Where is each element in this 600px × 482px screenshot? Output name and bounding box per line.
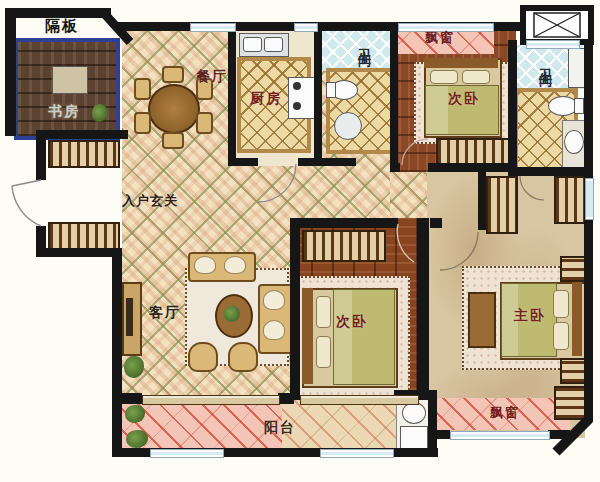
sofa-right-cushion-1 xyxy=(263,290,285,310)
wall-corridor-master xyxy=(478,172,486,230)
kitchen-sink-basin-left xyxy=(243,37,262,52)
label-kitchen: 厨房 xyxy=(250,90,282,108)
armchair-1 xyxy=(188,342,218,372)
label-study: 书房 xyxy=(48,103,80,121)
wall-bedroom-top-left xyxy=(390,31,398,172)
window-balcony-2 xyxy=(320,449,394,458)
sofa-top-cushion-1 xyxy=(194,256,216,274)
window-dining-top xyxy=(190,23,236,32)
sliding-door-living-balcony xyxy=(142,395,280,405)
bedroom-mid-wardrobe xyxy=(302,230,386,262)
wall-entry-bottom xyxy=(36,248,122,257)
sliding-door-bedroom-balcony xyxy=(300,395,419,405)
label-foyer: 入户玄关 xyxy=(122,192,178,210)
wall-bedroom-top-right xyxy=(508,40,517,172)
master-headboard xyxy=(572,282,582,356)
bath-top-toilet-tank xyxy=(326,82,336,98)
master-dresser xyxy=(554,386,586,420)
dining-chair-4 xyxy=(162,132,184,149)
bath-top-shower xyxy=(334,112,362,140)
label-bath-right: 卫生间 xyxy=(536,58,554,64)
label-bay-bottom: 飘窗 xyxy=(490,404,520,422)
foyer-cabinet-bottom xyxy=(48,222,120,250)
master-pillow-2 xyxy=(553,322,569,350)
bedroom-mid-pillow-1 xyxy=(316,296,331,328)
dining-table xyxy=(148,84,200,134)
wall-bedroom-mid-right xyxy=(417,218,429,400)
wall-left xyxy=(112,252,122,457)
wall-bedroom-top-bottom-2 xyxy=(428,163,516,172)
sofa-right-cushion-2 xyxy=(263,320,285,340)
room-bath-top xyxy=(322,31,390,71)
label-balcony: 阳台 xyxy=(264,419,296,437)
window-kitchen-top xyxy=(294,23,318,32)
wall-bedroom-top-bottom-1 xyxy=(390,163,400,172)
dining-chair-1 xyxy=(162,66,184,83)
wall-right xyxy=(584,40,593,422)
bedroom-top-headboard xyxy=(424,58,498,68)
wall-entry-upper xyxy=(36,130,46,180)
wall-balcony-pier-left xyxy=(122,393,142,404)
window-master-right xyxy=(585,178,594,220)
stove-burner-2 xyxy=(293,102,301,110)
wall-bay-bottom-left xyxy=(434,430,450,439)
label-dining: 餐厅 xyxy=(196,68,228,86)
label-bay-top: 飘窗 xyxy=(425,29,455,47)
dining-chair-5 xyxy=(134,112,151,134)
window-balcony-1 xyxy=(150,449,224,458)
master-wardrobe-left xyxy=(486,176,518,234)
wall-bedroom-mid-left xyxy=(290,218,300,400)
floorplan-canvas: 隔板 书房 餐厅 厨房 卫生间 飘窗 次卧 卫生间 入户玄关 客厅 次卧 主卧 … xyxy=(0,0,600,482)
master-nightstand-top xyxy=(560,256,586,282)
duct-shaft xyxy=(520,5,594,45)
bedroom-top-pillow-1 xyxy=(430,70,458,84)
master-pillow-1 xyxy=(553,290,569,318)
wall-utility-right xyxy=(428,390,437,457)
sofa-top-cushion-2 xyxy=(224,256,246,274)
wall-under-study xyxy=(36,130,128,139)
wall-bay-bottom-right xyxy=(548,430,570,439)
kitchen-sink-basin-right xyxy=(264,37,283,52)
bath-right-sink xyxy=(564,130,584,154)
bedroom-mid-blanket xyxy=(333,289,395,385)
wall-bath-right-bottom xyxy=(508,167,593,176)
label-partition: 隔板 xyxy=(45,17,79,36)
dining-chair-6 xyxy=(134,78,151,100)
label-bath-top: 卫生间 xyxy=(355,38,373,44)
utility-basin xyxy=(402,402,426,424)
foyer-cabinet-top xyxy=(48,140,120,168)
tv xyxy=(126,298,133,336)
window-bay-bottom-glass xyxy=(450,431,550,440)
study-desk xyxy=(52,66,88,94)
wall-balcony-pier-mid xyxy=(278,393,294,404)
armchair-2 xyxy=(228,342,258,372)
label-bedroom-top: 次卧 xyxy=(448,90,480,108)
wall-kitchen-bottom-1 xyxy=(228,158,258,166)
label-living: 客厅 xyxy=(149,304,181,322)
wall-bedroom-mid-top xyxy=(290,218,398,228)
kitchen-stove xyxy=(288,77,316,119)
bedroom-mid-pillow-2 xyxy=(316,336,331,368)
label-bedroom-mid: 次卧 xyxy=(336,313,368,331)
master-nightstand-bottom xyxy=(560,358,586,384)
wall-bath-top-bottom xyxy=(314,158,356,166)
wall-study-left xyxy=(5,8,16,136)
window-shaft-bottom xyxy=(526,40,580,49)
bedroom-top-pillow-2 xyxy=(462,70,490,84)
stove-burner-1 xyxy=(293,82,301,90)
wall-kitchen-left xyxy=(228,31,236,166)
wall-bath-top-left xyxy=(314,31,322,166)
master-bench xyxy=(468,292,496,348)
wall-bedroom-mid-top-2 xyxy=(430,218,442,228)
master-wardrobe-right xyxy=(554,176,588,224)
bedroom-mid-headboard xyxy=(302,288,313,384)
entry-door-arc xyxy=(12,186,41,226)
bath-right-toilet-tank xyxy=(574,98,584,114)
label-master: 主卧 xyxy=(514,307,546,325)
dining-chair-3 xyxy=(196,112,213,134)
